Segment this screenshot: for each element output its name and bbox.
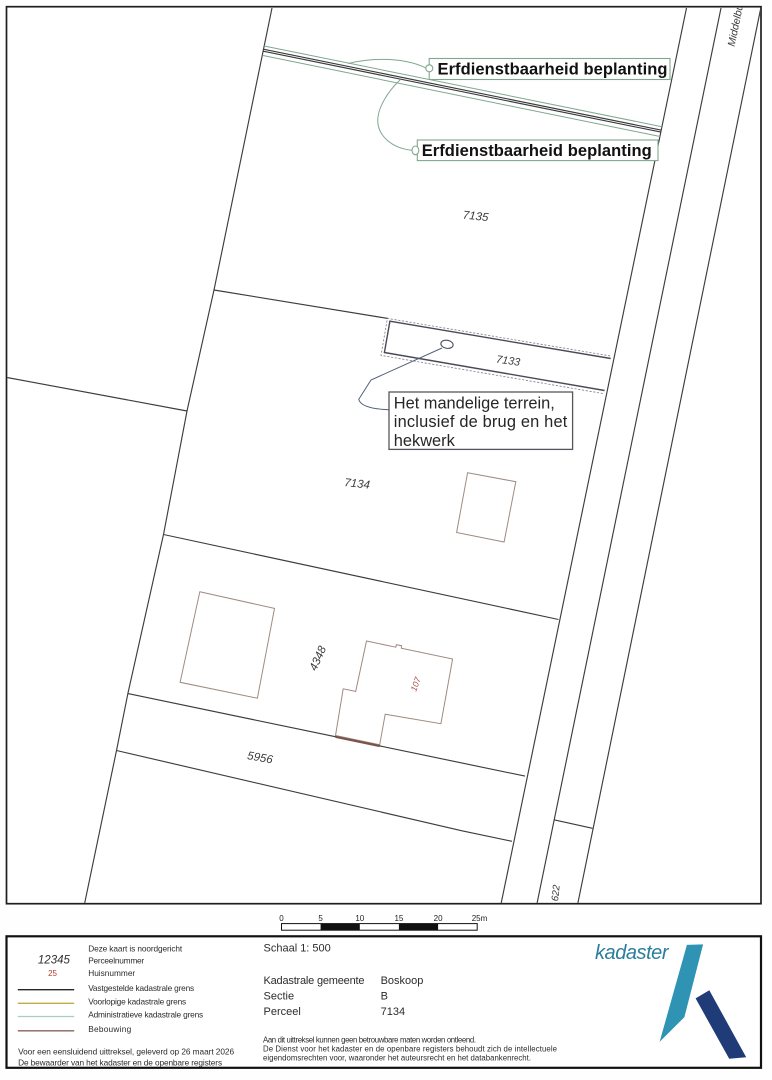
svg-text:20: 20 (434, 914, 443, 923)
svg-text:622: 622 (550, 884, 563, 902)
svg-text:hekwerk: hekwerk (394, 432, 456, 450)
svg-text:Erfdienstbaarheid beplanting: Erfdienstbaarheid beplanting (422, 142, 652, 160)
svg-text:15: 15 (394, 914, 403, 923)
svg-text:10: 10 (355, 914, 364, 923)
svg-text:25m: 25m (472, 914, 488, 923)
svg-text:Huisnummer: Huisnummer (88, 968, 135, 978)
svg-text:Administratieve kadastrale gre: Administratieve kadastrale grens (88, 1010, 203, 1020)
svg-text:Het mandelige terrein,: Het mandelige terrein, (394, 395, 555, 413)
svg-text:B: B (381, 990, 388, 1002)
svg-text:eigendomsrechten voor, waarond: eigendomsrechten voor, waaronder het aut… (263, 1054, 531, 1063)
svg-text:Perceelnummer: Perceelnummer (88, 955, 144, 965)
svg-text:Deze kaart is noordgericht: Deze kaart is noordgericht (88, 943, 183, 953)
svg-text:Schaal 1: 500: Schaal 1: 500 (264, 943, 331, 955)
svg-text:25: 25 (48, 969, 57, 978)
svg-text:De bewaarder van het kadaster: De bewaarder van het kadaster en de open… (18, 1057, 222, 1067)
svg-text:12345: 12345 (38, 955, 71, 967)
svg-text:inclusief de brug en het: inclusief de brug en het (394, 413, 568, 431)
svg-text:Voor een eensluidend uittrekse: Voor een eensluidend uittreksel, gelever… (18, 1047, 234, 1057)
svg-text:Sectie: Sectie (264, 990, 295, 1002)
svg-text:5: 5 (318, 914, 323, 923)
svg-text:Bebouwing: Bebouwing (88, 1024, 131, 1034)
svg-text:Aan dit uittreksel kunnen geen: Aan dit uittreksel kunnen geen betrouwba… (263, 1036, 476, 1045)
svg-text:Erfdienstbaarheid beplanting: Erfdienstbaarheid beplanting (438, 61, 668, 79)
svg-text:7134: 7134 (381, 1006, 405, 1018)
svg-text:Vastgestelde kadastrale grens: Vastgestelde kadastrale grens (88, 983, 194, 993)
svg-text:Kadastrale gemeente: Kadastrale gemeente (264, 975, 365, 987)
svg-text:Voorlopige kadastrale grens: Voorlopige kadastrale grens (88, 997, 186, 1007)
svg-text:kadaster: kadaster (595, 942, 670, 964)
svg-text:Perceel: Perceel (264, 1006, 301, 1018)
svg-text:0: 0 (279, 914, 284, 923)
svg-text:De Dienst voor het kadaster en: De Dienst voor het kadaster en de openba… (263, 1045, 557, 1054)
svg-text:Boskoop: Boskoop (381, 975, 424, 987)
